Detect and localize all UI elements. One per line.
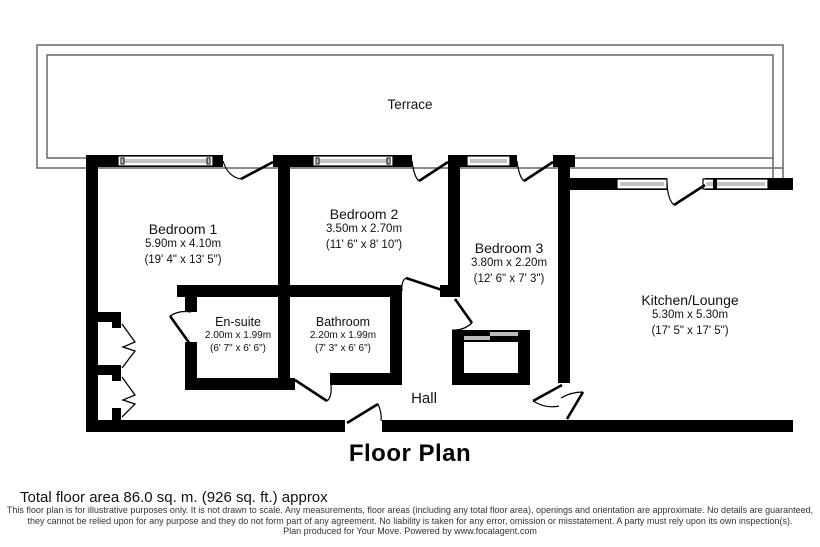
window-kitchen-right <box>703 179 768 189</box>
wall-divider-b1-b2 <box>278 167 290 297</box>
disclaimer-line1: This floor plan is for illustrative purp… <box>0 505 820 515</box>
bedroom3-metric: 3.80m x 2.20m <box>471 256 547 272</box>
door-bathroom <box>295 380 331 401</box>
terrace-label: Terrace <box>387 97 432 112</box>
window-kitchen-left <box>617 179 667 189</box>
bedroom2-metric: 3.50m x 2.70m <box>326 222 402 238</box>
wall-divider-b3-kitchen <box>558 167 570 383</box>
wall-divider-b2-b3 <box>448 167 460 297</box>
bedroom3-imperial: (12' 6" x 7' 3") <box>471 272 547 288</box>
wardrobe-bifold-doors <box>122 324 135 417</box>
bedroom2-name: Bedroom 2 <box>326 206 402 222</box>
door-bedroom3-hall <box>452 299 472 330</box>
kitchen-imperial: (17' 5" x 17' 5") <box>641 324 738 340</box>
wall-left <box>86 155 98 432</box>
bathroom-name: Bathroom <box>310 315 376 329</box>
bedroom1-metric: 5.90m x 4.10m <box>144 237 221 253</box>
bedroom3-label: Bedroom 3 3.80m x 2.20m (12' 6" x 7' 3") <box>471 240 547 287</box>
ensuite-imperial: (6' 7" x 6' 6") <box>205 342 271 355</box>
door-kitchen-passage-left <box>533 385 562 407</box>
bedroom1-label: Bedroom 1 5.90m x 4.10m (19' 4" x 13' 5"… <box>144 221 221 268</box>
wall-bottom <box>86 420 793 432</box>
kitchen-label: Kitchen/Lounge 5.30m x 5.30m (17' 5" x 1… <box>641 292 738 339</box>
window-bedroom1 <box>118 156 213 166</box>
wall-divider-ensuite-bathroom <box>278 297 290 390</box>
bathroom-metric: 2.20m x 1.99m <box>310 329 376 342</box>
total-floor-area: Total floor area 86.0 sq. m. (926 sq. ft… <box>20 489 328 506</box>
kitchen-name: Kitchen/Lounge <box>641 292 738 308</box>
bathroom-label: Bathroom 2.20m x 1.99m (7' 3" x 6' 6") <box>310 315 376 355</box>
bedroom1-name: Bedroom 1 <box>144 221 221 237</box>
ensuite-label: En-suite 2.00m x 1.99m (6' 7" x 6' 6") <box>205 315 271 355</box>
wall-wardrobe-bottom-cap <box>112 408 121 420</box>
bedroom2-imperial: (11' 6" x 8' 10") <box>326 238 402 254</box>
page-title: Floor Plan <box>349 440 471 468</box>
ensuite-metric: 2.00m x 1.99m <box>205 329 271 342</box>
bedroom3-name: Bedroom 3 <box>471 240 547 256</box>
door-ensuite <box>170 312 191 345</box>
window-bedroom2 <box>313 156 393 166</box>
ensuite-name: En-suite <box>205 315 271 329</box>
wall-storage-right <box>518 330 530 385</box>
bedroom1-imperial: (19' 4" x 13' 5") <box>144 253 221 269</box>
kitchen-metric: 5.30m x 5.30m <box>641 308 738 324</box>
bedroom2-label: Bedroom 2 3.50m x 2.70m (11' 6" x 8' 10"… <box>326 206 402 253</box>
wall-wardrobe-stub2-cap <box>112 365 121 381</box>
floor-plan-canvas: Terrace Bedroom 1 5.90m x 4.10m (19' 4" … <box>0 0 820 547</box>
disclaimer-line2: they cannot be relied upon for any purpo… <box>0 516 820 526</box>
wall-wardrobe-stub1-cap <box>112 312 121 328</box>
credit-line: Plan produced for Your Move. Powered by … <box>0 526 820 536</box>
wall-ensuite-left-upper <box>185 297 197 312</box>
door-kitchen-passage-right <box>561 392 583 419</box>
hall-label: Hall <box>411 390 437 407</box>
wall-ensuite-bathroom-top <box>177 285 402 297</box>
wall-bathroom-bottom <box>330 373 402 385</box>
bifold-door-top <box>122 324 135 368</box>
window-bedroom3 <box>467 156 510 166</box>
bathroom-imperial: (7' 3" x 6' 6") <box>310 342 376 355</box>
wall-bathroom-right <box>390 285 402 385</box>
bifold-door-bottom <box>122 377 135 417</box>
